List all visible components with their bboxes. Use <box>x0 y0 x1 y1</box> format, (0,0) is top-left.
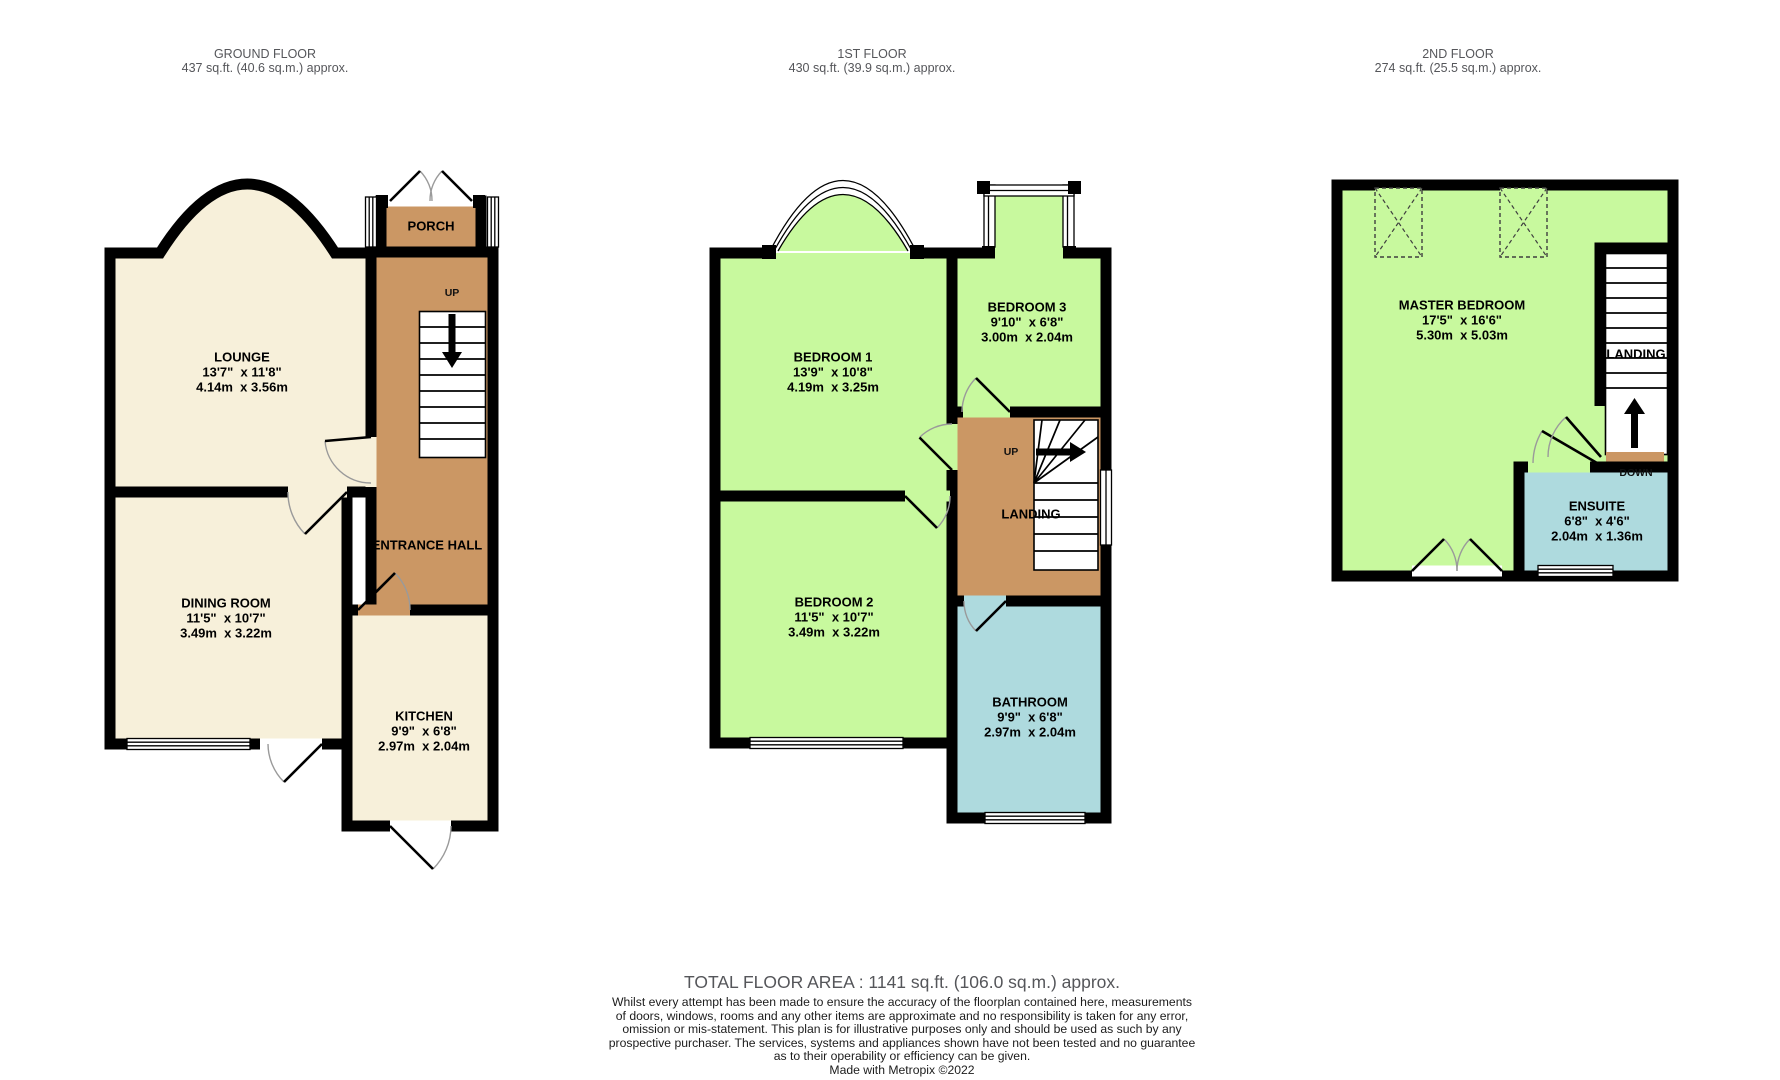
floorplan-drawing <box>0 0 1780 1080</box>
first-floor-area: 430 sq.ft. (39.9 sq.m.) approx. <box>789 61 956 75</box>
ground-floor-header: GROUND FLOOR 437 sq.ft. (40.6 sq.m.) app… <box>182 47 349 75</box>
bathroom-label: BATHROOM 9'9" x 6'8" 2.97m x 2.04m <box>984 695 1076 740</box>
floorplan-page: GROUND FLOOR 437 sq.ft. (40.6 sq.m.) app… <box>0 0 1780 1080</box>
first-staircase <box>1034 420 1098 570</box>
porch-double-door <box>376 171 485 208</box>
ground-staircase <box>420 312 486 458</box>
total-floor-area: TOTAL FLOOR AREA : 1141 sq.ft. (106.0 sq… <box>684 972 1120 993</box>
first-floor-header: 1ST FLOOR 430 sq.ft. (39.9 sq.m.) approx… <box>789 47 956 75</box>
bedroom3-bay-window <box>977 181 1081 259</box>
second-floor-title: 2ND FLOOR <box>1375 47 1542 61</box>
up-label-first: UP <box>1004 446 1019 458</box>
master-bedroom-label: MASTER BEDROOM 17'5" x 16'6" 5.30m x 5.0… <box>1399 298 1525 343</box>
disclaimer-line: Whilst every attempt has been made to en… <box>609 996 1196 1010</box>
bedroom2-label: BEDROOM 2 11'5" x 10'7" 3.49m x 3.22m <box>788 595 880 640</box>
bedroom1-bay-window <box>762 181 924 260</box>
porch-label: PORCH <box>408 219 455 234</box>
landing-window <box>1101 470 1112 545</box>
room-lounge <box>110 184 371 492</box>
ground-floor-area: 437 sq.ft. (40.6 sq.m.) approx. <box>182 61 349 75</box>
second-floor-area: 274 sq.ft. (25.5 sq.m.) approx. <box>1375 61 1542 75</box>
disclaimer-line: omission or mis-statement. This plan is … <box>609 1023 1196 1037</box>
landing-second-label: LANDING <box>1606 347 1665 362</box>
landing-first-label: LANDING <box>1001 507 1060 522</box>
dining-window <box>127 739 250 750</box>
porch-window-right <box>488 197 499 247</box>
porch-window-left <box>366 197 377 247</box>
bathroom-window <box>985 813 1085 824</box>
bedroom2-window <box>750 738 903 749</box>
down-label-second: DOWN <box>1619 467 1652 479</box>
skylight-2 <box>1500 188 1547 257</box>
skylight-1 <box>1375 188 1422 257</box>
ground-floor-plan <box>110 171 499 869</box>
kitchen-label: KITCHEN 9'9" x 6'8" 2.97m x 2.04m <box>378 709 470 754</box>
ensuite-door-opening <box>1528 462 1590 473</box>
up-label-ground: UP <box>445 287 460 299</box>
disclaimer: Whilst every attempt has been made to en… <box>609 996 1196 1078</box>
rear-door <box>260 739 322 783</box>
entrance-hall-label: ENTRANCE HALL <box>372 538 483 553</box>
disclaimer-line: prospective purchaser. The services, sys… <box>609 1037 1196 1051</box>
disclaimer-line: as to their operability or efficiency ca… <box>609 1050 1196 1064</box>
ensuite-window <box>1538 566 1613 577</box>
bedroom3-label: BEDROOM 3 9'10" x 6'8" 3.00m x 2.04m <box>981 300 1073 345</box>
metropix-credit: Made with Metropix ©2022 <box>609 1064 1196 1078</box>
disclaimer-line: of doors, windows, rooms and any other i… <box>609 1010 1196 1024</box>
dining-room-label: DINING ROOM 11'5" x 10'7" 3.49m x 3.22m <box>180 596 272 641</box>
stair-bottom-landing-strip <box>1606 452 1664 463</box>
kitchen-rear-door <box>390 821 451 870</box>
ground-floor-title: GROUND FLOOR <box>182 47 349 61</box>
bedroom1-label: BEDROOM 1 13'9" x 10'8" 4.19m x 3.25m <box>787 350 879 395</box>
lounge-label: LOUNGE 13'7" x 11'8" 4.14m x 3.56m <box>196 350 288 395</box>
ensuite-label: ENSUITE 6'8" x 4'6" 2.04m x 1.36m <box>1551 499 1643 544</box>
second-floor-header: 2ND FLOOR 274 sq.ft. (25.5 sq.m.) approx… <box>1375 47 1542 75</box>
first-floor-title: 1ST FLOOR <box>789 47 956 61</box>
